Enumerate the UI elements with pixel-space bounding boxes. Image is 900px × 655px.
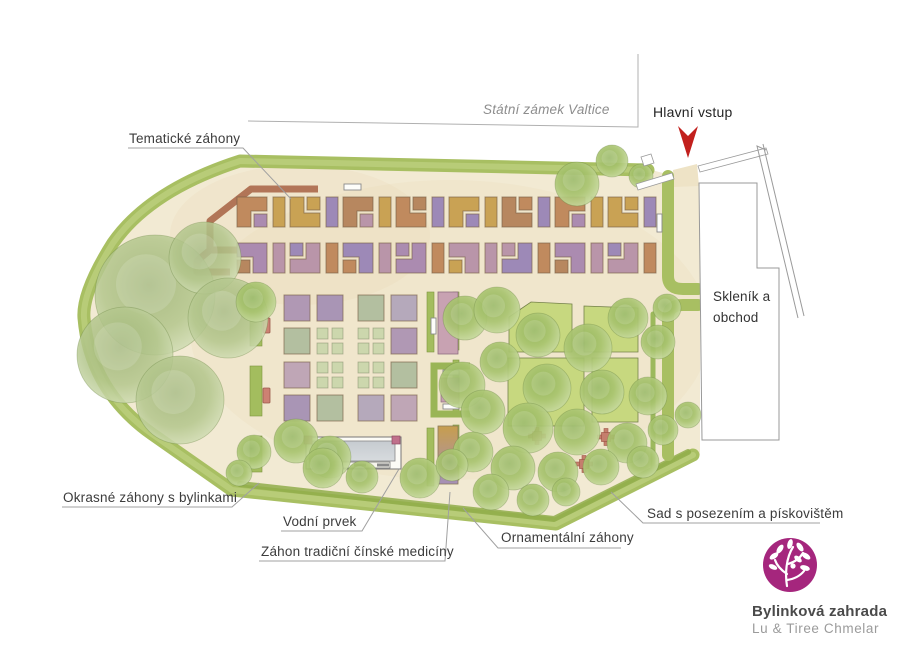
water-feature-label: Vodní prvek [283,514,357,529]
greenhouse-shop-label: Skleník a obchod [713,287,787,329]
chinese-medicine-label: Záhon tradiční čínské medicíny [261,544,454,559]
red-down-arrow-icon [678,126,698,158]
main-entrance-label: Hlavní vstup [653,104,732,120]
castle-label: Státní zámek Valtice [483,102,610,117]
orchard-label: Sad s posezením a pískovištěm [647,506,843,521]
garden-plan-canvas: Státní zámek Valtice Hlavní vstup Temati… [0,0,900,655]
ornamental-beds-label: Ornamentální záhony [501,530,634,545]
logo-title: Bylinková zahrada [752,603,900,620]
logo: Bylinková zahrada Lu & Tiree Chmelar [752,536,900,636]
herb-tree-icon [760,536,818,596]
ornamental-herb-beds-label: Okrasné záhony s bylinkami [63,490,237,505]
thematic-beds-label: Tematické záhony [129,131,240,146]
logo-subtitle: Lu & Tiree Chmelar [752,621,900,636]
